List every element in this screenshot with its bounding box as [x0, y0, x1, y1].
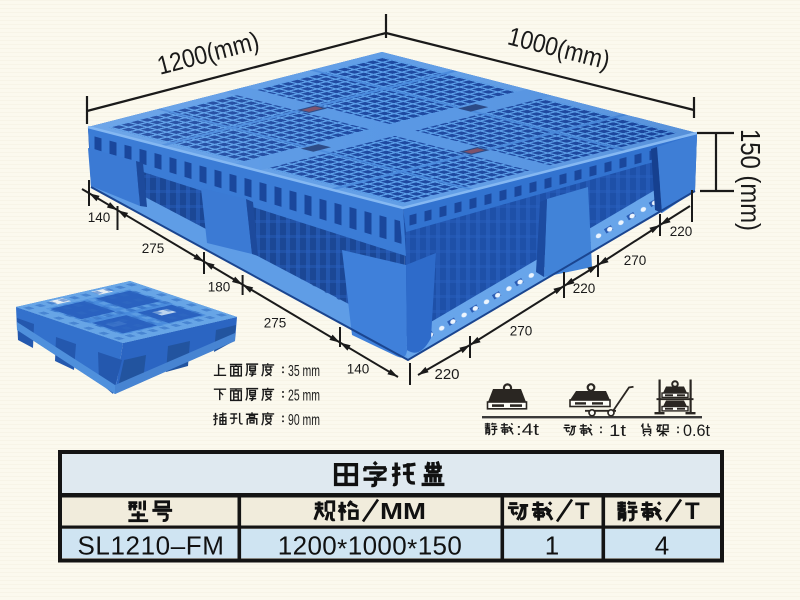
- svg-text:140: 140: [88, 210, 111, 225]
- svg-text:220: 220: [434, 366, 459, 383]
- svg-text:220: 220: [670, 224, 693, 239]
- svg-text:SL1210–FM: SL1210–FM: [77, 531, 224, 561]
- svg-text:220: 220: [573, 281, 596, 296]
- svg-text:25 mm: 25 mm: [288, 388, 320, 405]
- svg-text:35 mm: 35 mm: [288, 363, 320, 380]
- svg-text:1t: 1t: [609, 421, 626, 440]
- svg-text:0.6t: 0.6t: [683, 421, 710, 440]
- svg-text:140: 140: [347, 362, 370, 377]
- svg-text:90 mm: 90 mm: [288, 412, 320, 429]
- svg-text:270: 270: [624, 253, 647, 268]
- svg-text:275: 275: [264, 316, 287, 331]
- svg-text:1200(mm): 1200(mm): [154, 25, 262, 80]
- svg-text:MM: MM: [380, 498, 426, 524]
- svg-text:1: 1: [545, 531, 559, 561]
- svg-text:275: 275: [142, 241, 165, 256]
- svg-text:4: 4: [655, 531, 669, 561]
- svg-text:T: T: [575, 498, 590, 525]
- svg-text:180: 180: [208, 280, 231, 295]
- svg-text:T: T: [685, 498, 700, 525]
- svg-text:1200*1000*150: 1200*1000*150: [278, 531, 463, 564]
- svg-text:150 (mm): 150 (mm): [735, 129, 766, 231]
- svg-text::4t: :4t: [516, 420, 539, 439]
- svg-text:270: 270: [510, 324, 533, 339]
